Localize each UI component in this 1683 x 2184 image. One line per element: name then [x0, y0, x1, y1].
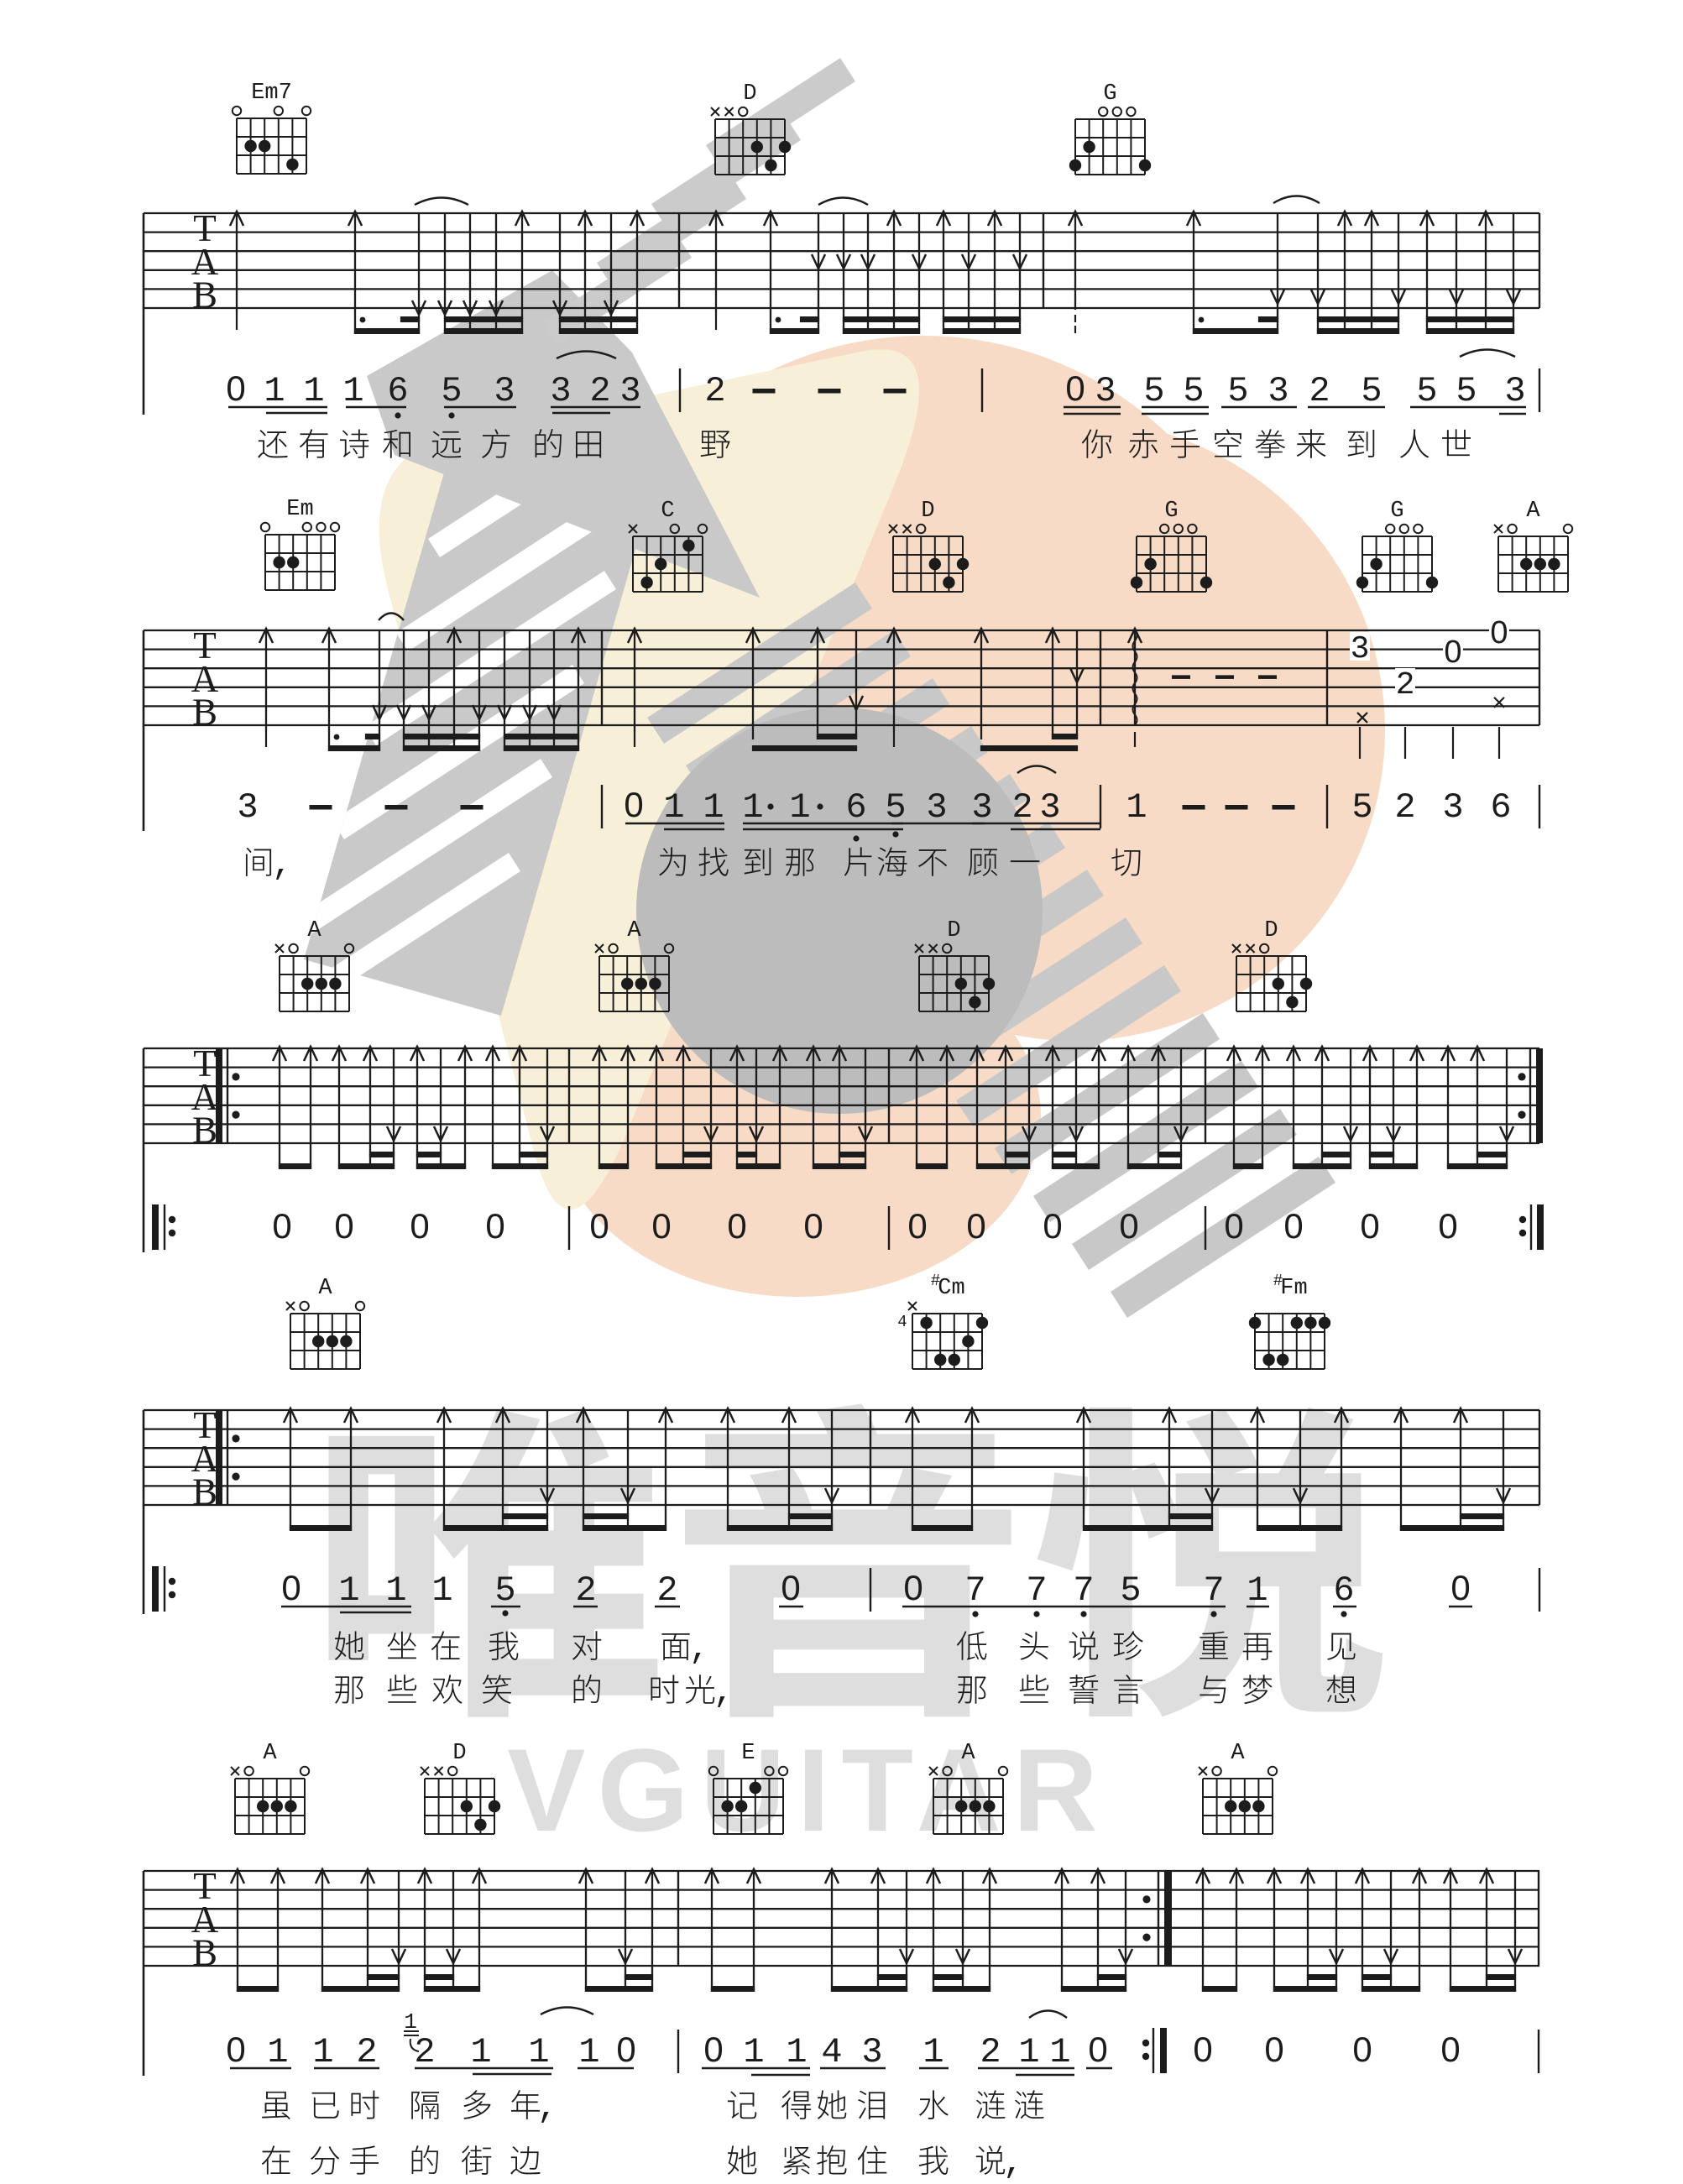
- svg-text:0: 0: [966, 1206, 985, 1246]
- svg-text:6: 6: [387, 371, 408, 411]
- svg-text:2: 2: [980, 2032, 1001, 2072]
- svg-text:1: 1: [578, 2032, 599, 2072]
- svg-text:0: 0: [651, 1206, 671, 1246]
- svg-text:0: 0: [485, 1206, 504, 1246]
- svg-text:G: G: [1103, 81, 1116, 107]
- svg-text:0: 0: [1224, 1206, 1243, 1246]
- svg-text:1: 1: [663, 787, 684, 828]
- svg-text:0: 0: [1088, 2030, 1107, 2069]
- svg-text:1: 1: [264, 371, 285, 411]
- svg-text:5: 5: [494, 1570, 515, 1611]
- svg-text:1: 1: [1247, 1570, 1267, 1611]
- svg-text:A: A: [318, 1276, 332, 1301]
- svg-text:Em: Em: [286, 497, 313, 522]
- svg-text:D: D: [947, 918, 960, 943]
- svg-text:5: 5: [1227, 371, 1248, 411]
- svg-text:,: ,: [689, 1631, 709, 1669]
- svg-text:1: 1: [470, 2032, 491, 2072]
- svg-text:1: 1: [267, 2032, 288, 2072]
- svg-text:,: ,: [1003, 2145, 1023, 2183]
- svg-text:3: 3: [1504, 371, 1525, 411]
- svg-text:0: 0: [226, 368, 245, 408]
- svg-text:0: 0: [1444, 635, 1461, 670]
- svg-text:0: 0: [781, 1568, 800, 1607]
- svg-text:0: 0: [1043, 1206, 1062, 1246]
- svg-text:B: B: [192, 1932, 217, 1974]
- svg-text:1: 1: [742, 787, 763, 828]
- svg-text:Cm: Cm: [938, 1276, 964, 1301]
- svg-text:7: 7: [964, 1570, 985, 1611]
- svg-text:0: 0: [226, 2030, 245, 2069]
- svg-text:VGUITAR: VGUITAR: [507, 1724, 1110, 1856]
- svg-text:2: 2: [656, 1570, 677, 1611]
- svg-text:,: ,: [272, 847, 292, 885]
- svg-text:2: 2: [356, 2032, 377, 2072]
- svg-text:3: 3: [971, 787, 992, 828]
- svg-text:3: 3: [237, 787, 258, 828]
- svg-text:1: 1: [342, 371, 363, 411]
- svg-text:0: 0: [334, 1206, 353, 1246]
- svg-text:7: 7: [1073, 1570, 1094, 1611]
- svg-text:0: 0: [1352, 2030, 1372, 2069]
- svg-text:0: 0: [410, 1206, 429, 1246]
- svg-text:0: 0: [1490, 615, 1508, 650]
- svg-text:,: ,: [713, 1675, 734, 1712]
- svg-text:1: 1: [1018, 2032, 1039, 2072]
- svg-text:2: 2: [1394, 787, 1415, 828]
- svg-text:5: 5: [885, 787, 906, 828]
- svg-text:3: 3: [494, 371, 515, 411]
- svg-text:1: 1: [789, 787, 810, 828]
- svg-text:D: D: [452, 1741, 466, 1766]
- svg-text:5: 5: [1361, 371, 1382, 411]
- svg-text:5: 5: [1120, 1570, 1141, 1611]
- svg-text:A: A: [1231, 1741, 1245, 1766]
- svg-text:0: 0: [1440, 2030, 1460, 2069]
- svg-text:1: 1: [385, 1570, 406, 1611]
- svg-text:C: C: [661, 499, 674, 524]
- svg-text:1: 1: [303, 371, 324, 411]
- svg-text:0: 0: [1450, 1568, 1470, 1607]
- svg-text:7: 7: [1203, 1570, 1224, 1611]
- svg-text:2: 2: [1309, 371, 1330, 411]
- svg-text:3: 3: [1095, 371, 1116, 411]
- svg-text:5: 5: [1416, 371, 1437, 411]
- svg-text:5: 5: [1143, 371, 1164, 411]
- svg-text:6: 6: [1490, 787, 1511, 828]
- svg-text:6: 6: [1333, 1570, 1354, 1611]
- svg-text:#: #: [931, 1272, 940, 1290]
- svg-text:G: G: [1164, 499, 1178, 524]
- svg-text:2: 2: [575, 1570, 596, 1611]
- svg-text:1: 1: [338, 1570, 359, 1611]
- svg-text:1: 1: [923, 2032, 943, 2072]
- svg-text:0: 0: [703, 2030, 723, 2069]
- svg-text:1: 1: [743, 2032, 764, 2072]
- svg-text:1: 1: [312, 2032, 333, 2072]
- svg-text:4: 4: [897, 1313, 907, 1331]
- svg-text:3: 3: [1351, 631, 1370, 667]
- svg-text:A: A: [627, 918, 641, 943]
- svg-text:5: 5: [441, 371, 462, 411]
- svg-text:A: A: [1526, 499, 1540, 524]
- svg-text:3: 3: [1039, 787, 1060, 828]
- svg-text:Em7: Em7: [251, 81, 292, 106]
- svg-text:0: 0: [907, 1206, 927, 1246]
- svg-text:3: 3: [926, 787, 947, 828]
- svg-text:0: 0: [272, 1206, 291, 1246]
- svg-text:B: B: [192, 274, 217, 316]
- svg-text:3: 3: [550, 371, 571, 411]
- svg-text:E: E: [741, 1741, 755, 1766]
- svg-text:3: 3: [1442, 787, 1463, 828]
- svg-text:2: 2: [1396, 667, 1415, 703]
- svg-text:3: 3: [619, 371, 640, 411]
- svg-text:2: 2: [1011, 787, 1032, 828]
- svg-text:0: 0: [281, 1568, 301, 1607]
- svg-text:G: G: [1390, 499, 1403, 524]
- svg-text:Fm: Fm: [1280, 1276, 1307, 1301]
- svg-text:1: 1: [786, 2032, 807, 2072]
- svg-text:5: 5: [1456, 371, 1477, 411]
- svg-text:B: B: [192, 1471, 217, 1513]
- svg-text:0: 0: [616, 2030, 635, 2069]
- svg-text:0: 0: [1438, 1206, 1457, 1246]
- svg-text:1: 1: [703, 787, 724, 828]
- svg-text:0: 0: [727, 1206, 746, 1246]
- svg-text:,: ,: [537, 2090, 557, 2128]
- svg-text:6: 6: [845, 787, 866, 828]
- svg-text:5: 5: [1351, 787, 1372, 828]
- svg-text:B: B: [192, 1110, 217, 1152]
- svg-text:0: 0: [1065, 368, 1085, 408]
- svg-text:2: 2: [704, 371, 725, 411]
- svg-text:A: A: [263, 1741, 277, 1766]
- svg-text:3: 3: [1267, 371, 1288, 411]
- svg-text:A: A: [307, 918, 321, 943]
- svg-text:1: 1: [1049, 2032, 1070, 2072]
- svg-text:5: 5: [1183, 371, 1204, 411]
- svg-text:0: 0: [803, 1206, 823, 1246]
- svg-text:D: D: [1264, 918, 1278, 943]
- svg-text:1: 1: [431, 1570, 452, 1611]
- svg-text:7: 7: [1026, 1570, 1047, 1611]
- svg-text:B: B: [192, 692, 217, 734]
- svg-text:D: D: [921, 499, 934, 524]
- svg-text:0: 0: [1360, 1206, 1379, 1246]
- svg-text:0: 0: [589, 1206, 609, 1246]
- svg-text:#: #: [1273, 1272, 1283, 1290]
- svg-text:0: 0: [1264, 2030, 1283, 2069]
- svg-text:3: 3: [861, 2032, 882, 2072]
- svg-text:0: 0: [1119, 1206, 1138, 1246]
- svg-text:0: 0: [1193, 2030, 1212, 2069]
- svg-text:2: 2: [589, 371, 610, 411]
- svg-text:1: 1: [528, 2032, 549, 2072]
- svg-text:0: 0: [1283, 1206, 1303, 1246]
- svg-text:D: D: [743, 81, 756, 107]
- svg-text:4: 4: [821, 2032, 842, 2072]
- svg-text:1: 1: [1126, 787, 1147, 828]
- svg-text:2: 2: [414, 2032, 435, 2072]
- svg-text:0: 0: [903, 1568, 923, 1607]
- svg-text:A: A: [961, 1741, 975, 1766]
- svg-text:0: 0: [624, 785, 643, 824]
